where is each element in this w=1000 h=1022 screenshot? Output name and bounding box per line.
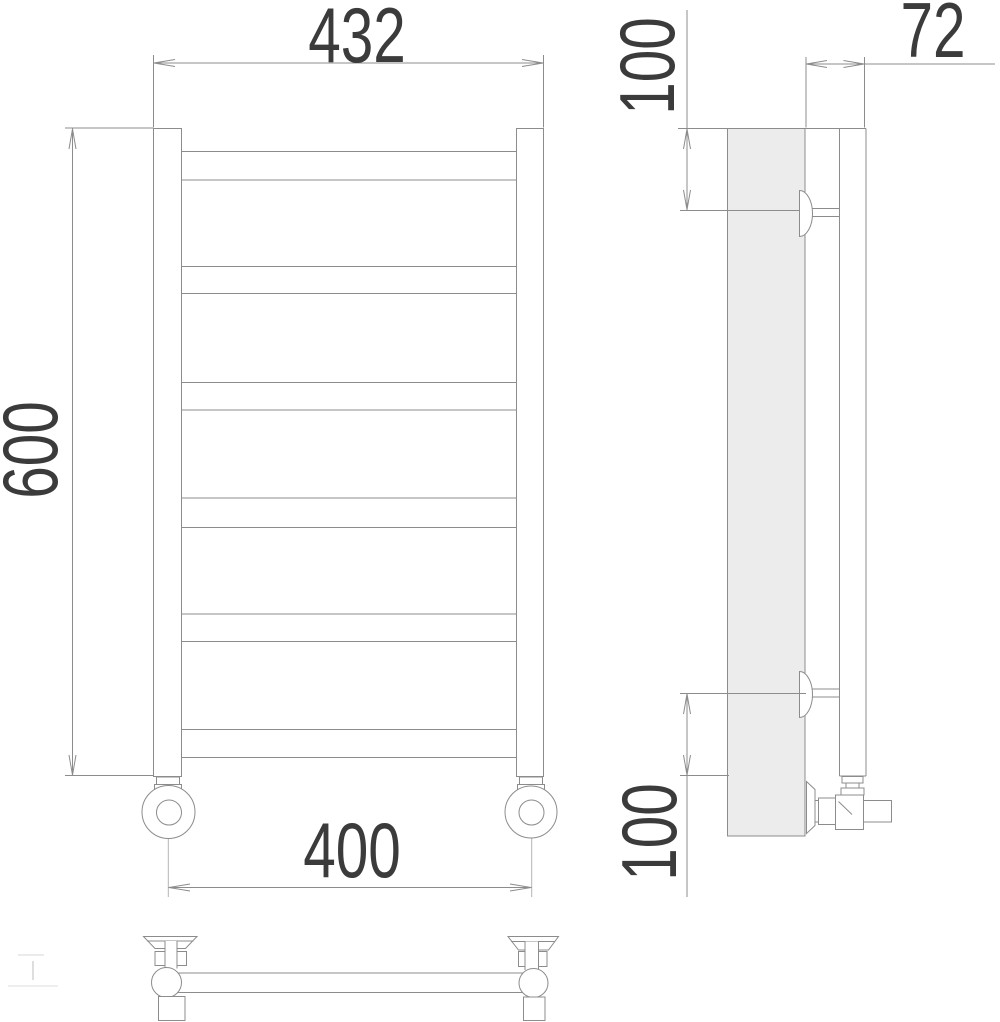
side-post	[840, 129, 867, 777]
bottom-right-assembly	[508, 937, 559, 1021]
dim-600-label: 600	[0, 401, 74, 499]
dim-100-top-label: 100	[604, 17, 691, 115]
rung-tube-5	[182, 614, 517, 642]
bottom-bracket	[800, 672, 840, 718]
side-view	[678, 129, 892, 837]
wall-escutcheon	[807, 782, 816, 834]
rung-tube-4	[182, 498, 517, 528]
right-post	[517, 129, 544, 777]
valve-circle	[519, 969, 548, 998]
bracket-stem-fill	[525, 942, 539, 971]
watermark	[8, 955, 58, 986]
top-bracket	[800, 191, 840, 237]
rung-tube-2	[182, 267, 517, 294]
pipe-block	[524, 997, 546, 1021]
dimension-72: 72	[806, 0, 995, 128]
rung-tube-1	[182, 152, 517, 181]
rung-tube-6	[182, 730, 517, 758]
right-valve	[505, 777, 557, 897]
towel-rail-technical-drawing: 432 600 400 72 100 1	[0, 0, 1000, 1022]
wall-panel	[728, 129, 806, 837]
bracket-flange	[800, 191, 813, 237]
valve-ring	[841, 788, 864, 795]
dimension-600: 600	[0, 128, 154, 776]
valve-inner-circle	[519, 800, 544, 825]
dimension-432: 432	[154, 0, 544, 128]
valve-collar	[157, 777, 180, 785]
valve-collar	[520, 777, 543, 785]
dim-432-label: 432	[308, 0, 406, 79]
bottom-tube	[170, 973, 533, 993]
dimension-400: 400	[168, 807, 531, 894]
dim-400-label: 400	[303, 807, 401, 894]
valve-circle	[152, 968, 182, 998]
left-valve	[142, 777, 195, 897]
rung-tube-3	[182, 383, 517, 411]
drawing-page: 432 600 400 72 100 1	[0, 0, 1000, 1022]
left-post	[154, 129, 182, 777]
valve-outlet	[864, 801, 892, 823]
front-view	[142, 129, 557, 898]
dim-100-bottom-label: 100	[606, 783, 693, 881]
pipe-block	[159, 997, 186, 1021]
bracket-stem-fill	[165, 941, 177, 969]
valve-collar	[842, 777, 863, 784]
valve-neck	[846, 783, 859, 788]
union-nut	[819, 798, 836, 825]
bracket-flange	[800, 672, 813, 718]
valve-inner-circle	[157, 800, 182, 825]
side-valve-assembly	[807, 777, 892, 834]
dim-72-label: 72	[900, 0, 965, 74]
bottom-left-assembly	[144, 937, 198, 1021]
bottom-view	[144, 937, 559, 1021]
